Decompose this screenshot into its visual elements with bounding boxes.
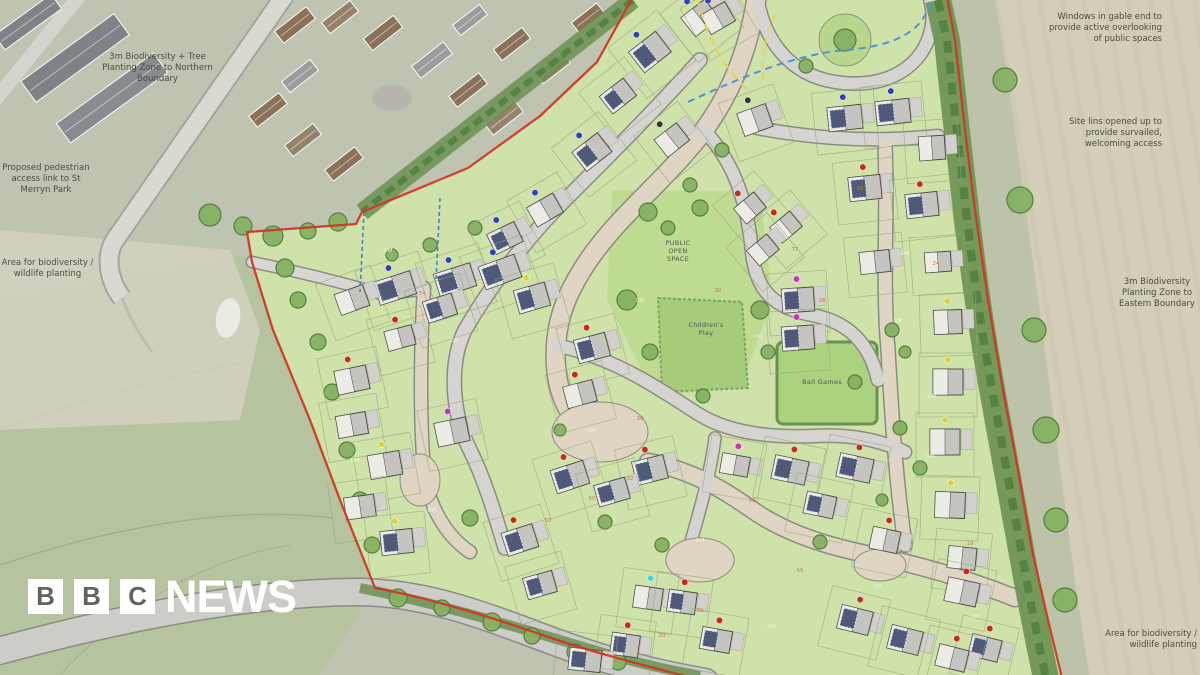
plot-number-label: 24: [933, 261, 940, 267]
parking-area: [372, 85, 412, 111]
tree: [799, 59, 813, 73]
plot-number-label: 20: [659, 633, 666, 639]
tree: [639, 203, 657, 221]
tree: [893, 421, 907, 435]
tree: [715, 143, 729, 157]
house-type-marker: [916, 181, 923, 188]
house-type-marker: [942, 417, 948, 423]
annotation-biodiversity-west: Area for biodiversity / wildlife plantin…: [0, 258, 95, 280]
bbc-news-logo: B B C NEWS: [28, 579, 296, 614]
tree: [642, 344, 658, 360]
tree: [554, 424, 566, 436]
tree: [1007, 187, 1033, 213]
label-public-open-space: PUBLIC OPEN SPACE: [654, 239, 702, 263]
tree: [1033, 417, 1059, 443]
plot-number-label: 32: [627, 476, 634, 482]
plot-number-label: 26: [819, 298, 826, 304]
house-type-marker: [944, 298, 951, 305]
plot-code-label: OM: [925, 454, 934, 460]
house-type-marker: [945, 357, 951, 363]
tree: [1022, 318, 1046, 342]
plot-code-label: OM: [900, 251, 909, 257]
tree: [876, 494, 888, 506]
plot-code-label: OM: [927, 394, 936, 400]
tree: [834, 29, 856, 51]
plot-number-label: 50: [749, 498, 756, 504]
plot-number-label: 26: [857, 186, 864, 192]
annotation-eastern-planting: 3m Biodiversity Planting Zone to Eastern…: [1118, 277, 1196, 310]
tree: [899, 346, 911, 358]
solar-panel: [702, 630, 718, 648]
plot-code-label: OM: [873, 584, 882, 590]
childrens-play-area: [658, 298, 748, 392]
bbc-block-1: B: [28, 579, 63, 614]
solar-panel: [830, 109, 847, 129]
tree: [1053, 588, 1077, 612]
tree: [329, 213, 347, 231]
label-childrens-play: Children's Play: [678, 321, 734, 337]
tree: [885, 323, 899, 337]
tree: [913, 461, 927, 475]
plot-code-label: OM: [450, 338, 459, 344]
house-type-marker: [887, 88, 894, 95]
tree: [617, 290, 637, 310]
solar-panel: [784, 329, 800, 348]
news-image-root: OMOMOMOMOMOMOMOMOMOMOMOMOMOMOM3030505050…: [0, 0, 1200, 675]
plot-number-label: 30: [715, 288, 722, 294]
tree: [655, 538, 669, 552]
plot-code-label: OM: [753, 334, 762, 340]
tree: [462, 510, 478, 526]
plot-code-label: OM: [635, 298, 644, 304]
house-type-marker: [793, 314, 800, 321]
annotation-pedestrian-link: Proposed pedestrian access link to St Me…: [0, 163, 92, 196]
tree: [761, 345, 775, 359]
tree: [199, 204, 221, 226]
plot-code-label: OM: [350, 458, 359, 464]
tree: [692, 200, 708, 216]
plot-number-label: 77: [792, 247, 799, 253]
plot-number-label: 19: [967, 541, 974, 547]
plot-number-label: 50: [545, 518, 552, 524]
tree: [993, 68, 1017, 92]
tree: [683, 178, 697, 192]
tree: [290, 292, 306, 308]
house-type-marker: [793, 276, 800, 283]
solar-panel: [669, 592, 684, 610]
tree: [696, 389, 710, 403]
plot-code-label: OM: [970, 614, 979, 620]
solar-panel: [878, 103, 895, 123]
tree: [276, 259, 294, 277]
bbc-block-2: B: [74, 579, 109, 614]
house-type-marker: [391, 518, 398, 525]
plot-code-label: OM: [383, 248, 392, 254]
bbc-block-3: C: [120, 579, 155, 614]
tree: [310, 334, 326, 350]
house-type-marker: [947, 480, 954, 487]
solar-panel: [612, 635, 627, 653]
solar-panel: [571, 651, 587, 668]
house-type-marker: [839, 94, 846, 101]
bbc-news-wordmark: NEWS: [165, 579, 296, 614]
plot-number-label: 74: [419, 291, 426, 297]
tree: [300, 223, 316, 239]
annotation-biodiversity-se: Area for biodiversity / wildlife plantin…: [1102, 629, 1197, 651]
tree: [661, 221, 675, 235]
label-ball-games: Ball Games: [793, 378, 851, 386]
plot-number-label: 30: [637, 416, 644, 422]
house-type-marker: [859, 164, 866, 171]
plot-code-label: OM: [427, 508, 436, 514]
plot-number-label: 50: [589, 496, 596, 502]
solar-panel: [383, 533, 399, 552]
plot-code-label: OM: [695, 538, 704, 544]
plot-number-label: 55: [797, 568, 804, 574]
tree: [1044, 508, 1068, 532]
annotation-site-lines: Site lins opened up to provide survailed…: [1058, 117, 1162, 150]
plot-code-label: OM: [893, 318, 902, 324]
solar-panel: [784, 291, 800, 310]
annotation-windows-gable: Windows in gable end to provide active o…: [1040, 12, 1162, 45]
plot-code-label: OM: [587, 428, 596, 434]
annotation-northern-planting: 3m Biodiversity + Tree Planting Zone to …: [100, 52, 215, 85]
solar-panel: [908, 196, 924, 215]
tree: [423, 238, 437, 252]
tree: [813, 535, 827, 549]
plot-code-label: OM: [767, 624, 776, 630]
plot-number-label: 58: [697, 608, 704, 614]
